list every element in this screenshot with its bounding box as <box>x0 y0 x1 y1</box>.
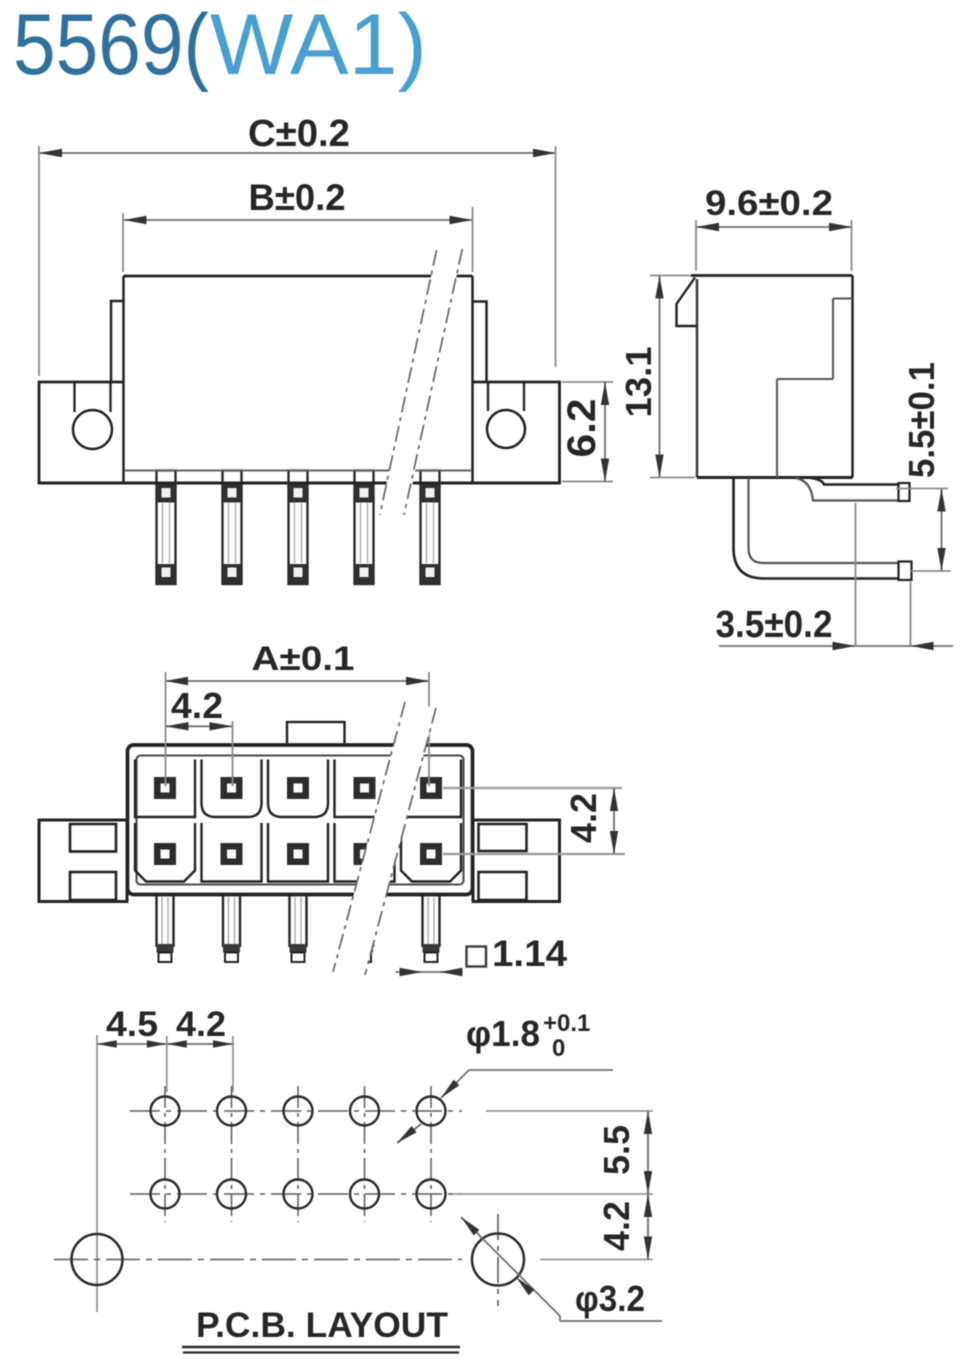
svg-text:4.2: 4.2 <box>176 1005 226 1044</box>
svg-text:C±0.2: C±0.2 <box>248 113 350 155</box>
svg-text:B±0.2: B±0.2 <box>249 177 346 218</box>
svg-text:+0.1: +0.1 <box>543 1010 590 1037</box>
svg-text:φ3.2: φ3.2 <box>575 1278 645 1319</box>
svg-text:P.C.B. LAYOUT: P.C.B. LAYOUT <box>196 1306 448 1345</box>
svg-text:4.2: 4.2 <box>596 1201 637 1251</box>
svg-text:4.5: 4.5 <box>106 1005 158 1044</box>
svg-text:φ1.8: φ1.8 <box>466 1013 540 1054</box>
svg-text:3.5±0.2: 3.5±0.2 <box>716 604 833 646</box>
svg-text:4.2: 4.2 <box>563 793 604 843</box>
svg-text:13.1: 13.1 <box>618 347 659 418</box>
svg-text:4.2: 4.2 <box>171 685 223 726</box>
svg-text:1.14: 1.14 <box>492 933 567 974</box>
svg-text:9.6±0.2: 9.6±0.2 <box>705 184 833 223</box>
svg-text:5.5: 5.5 <box>596 1125 637 1175</box>
svg-text:0: 0 <box>552 1035 565 1062</box>
svg-text:5569(: 5569( <box>13 0 209 93</box>
svg-text:A±0.1: A±0.1 <box>252 640 355 678</box>
svg-text:6.2: 6.2 <box>560 399 604 458</box>
svg-text:WA1): WA1) <box>210 0 427 93</box>
svg-text:5.5±0.1: 5.5±0.1 <box>901 362 942 478</box>
